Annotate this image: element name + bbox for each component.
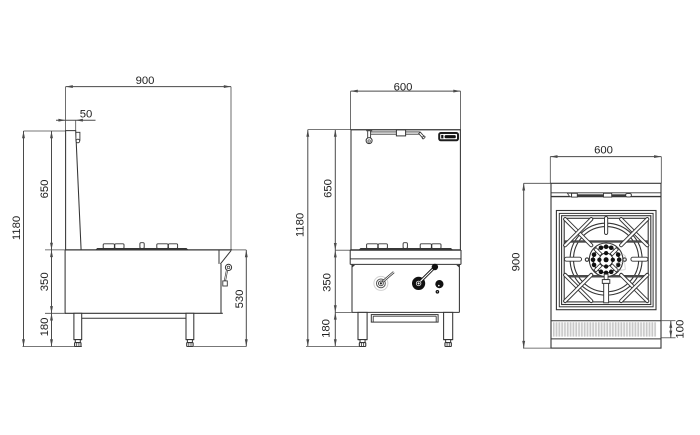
svg-text:530: 530: [234, 290, 246, 309]
svg-text:1180: 1180: [294, 213, 306, 237]
svg-text:900: 900: [136, 75, 155, 87]
svg-text:600: 600: [394, 82, 413, 94]
svg-text:650: 650: [39, 180, 51, 199]
svg-text:180: 180: [39, 318, 51, 337]
svg-text:50: 50: [80, 109, 93, 121]
svg-text:900: 900: [510, 253, 522, 272]
svg-text:600: 600: [594, 144, 613, 156]
svg-text:350: 350: [322, 273, 334, 292]
svg-text:180: 180: [320, 319, 332, 338]
svg-text:1180: 1180: [11, 216, 23, 240]
svg-text:100: 100: [675, 320, 687, 339]
svg-text:650: 650: [323, 179, 335, 198]
svg-text:350: 350: [39, 272, 51, 291]
